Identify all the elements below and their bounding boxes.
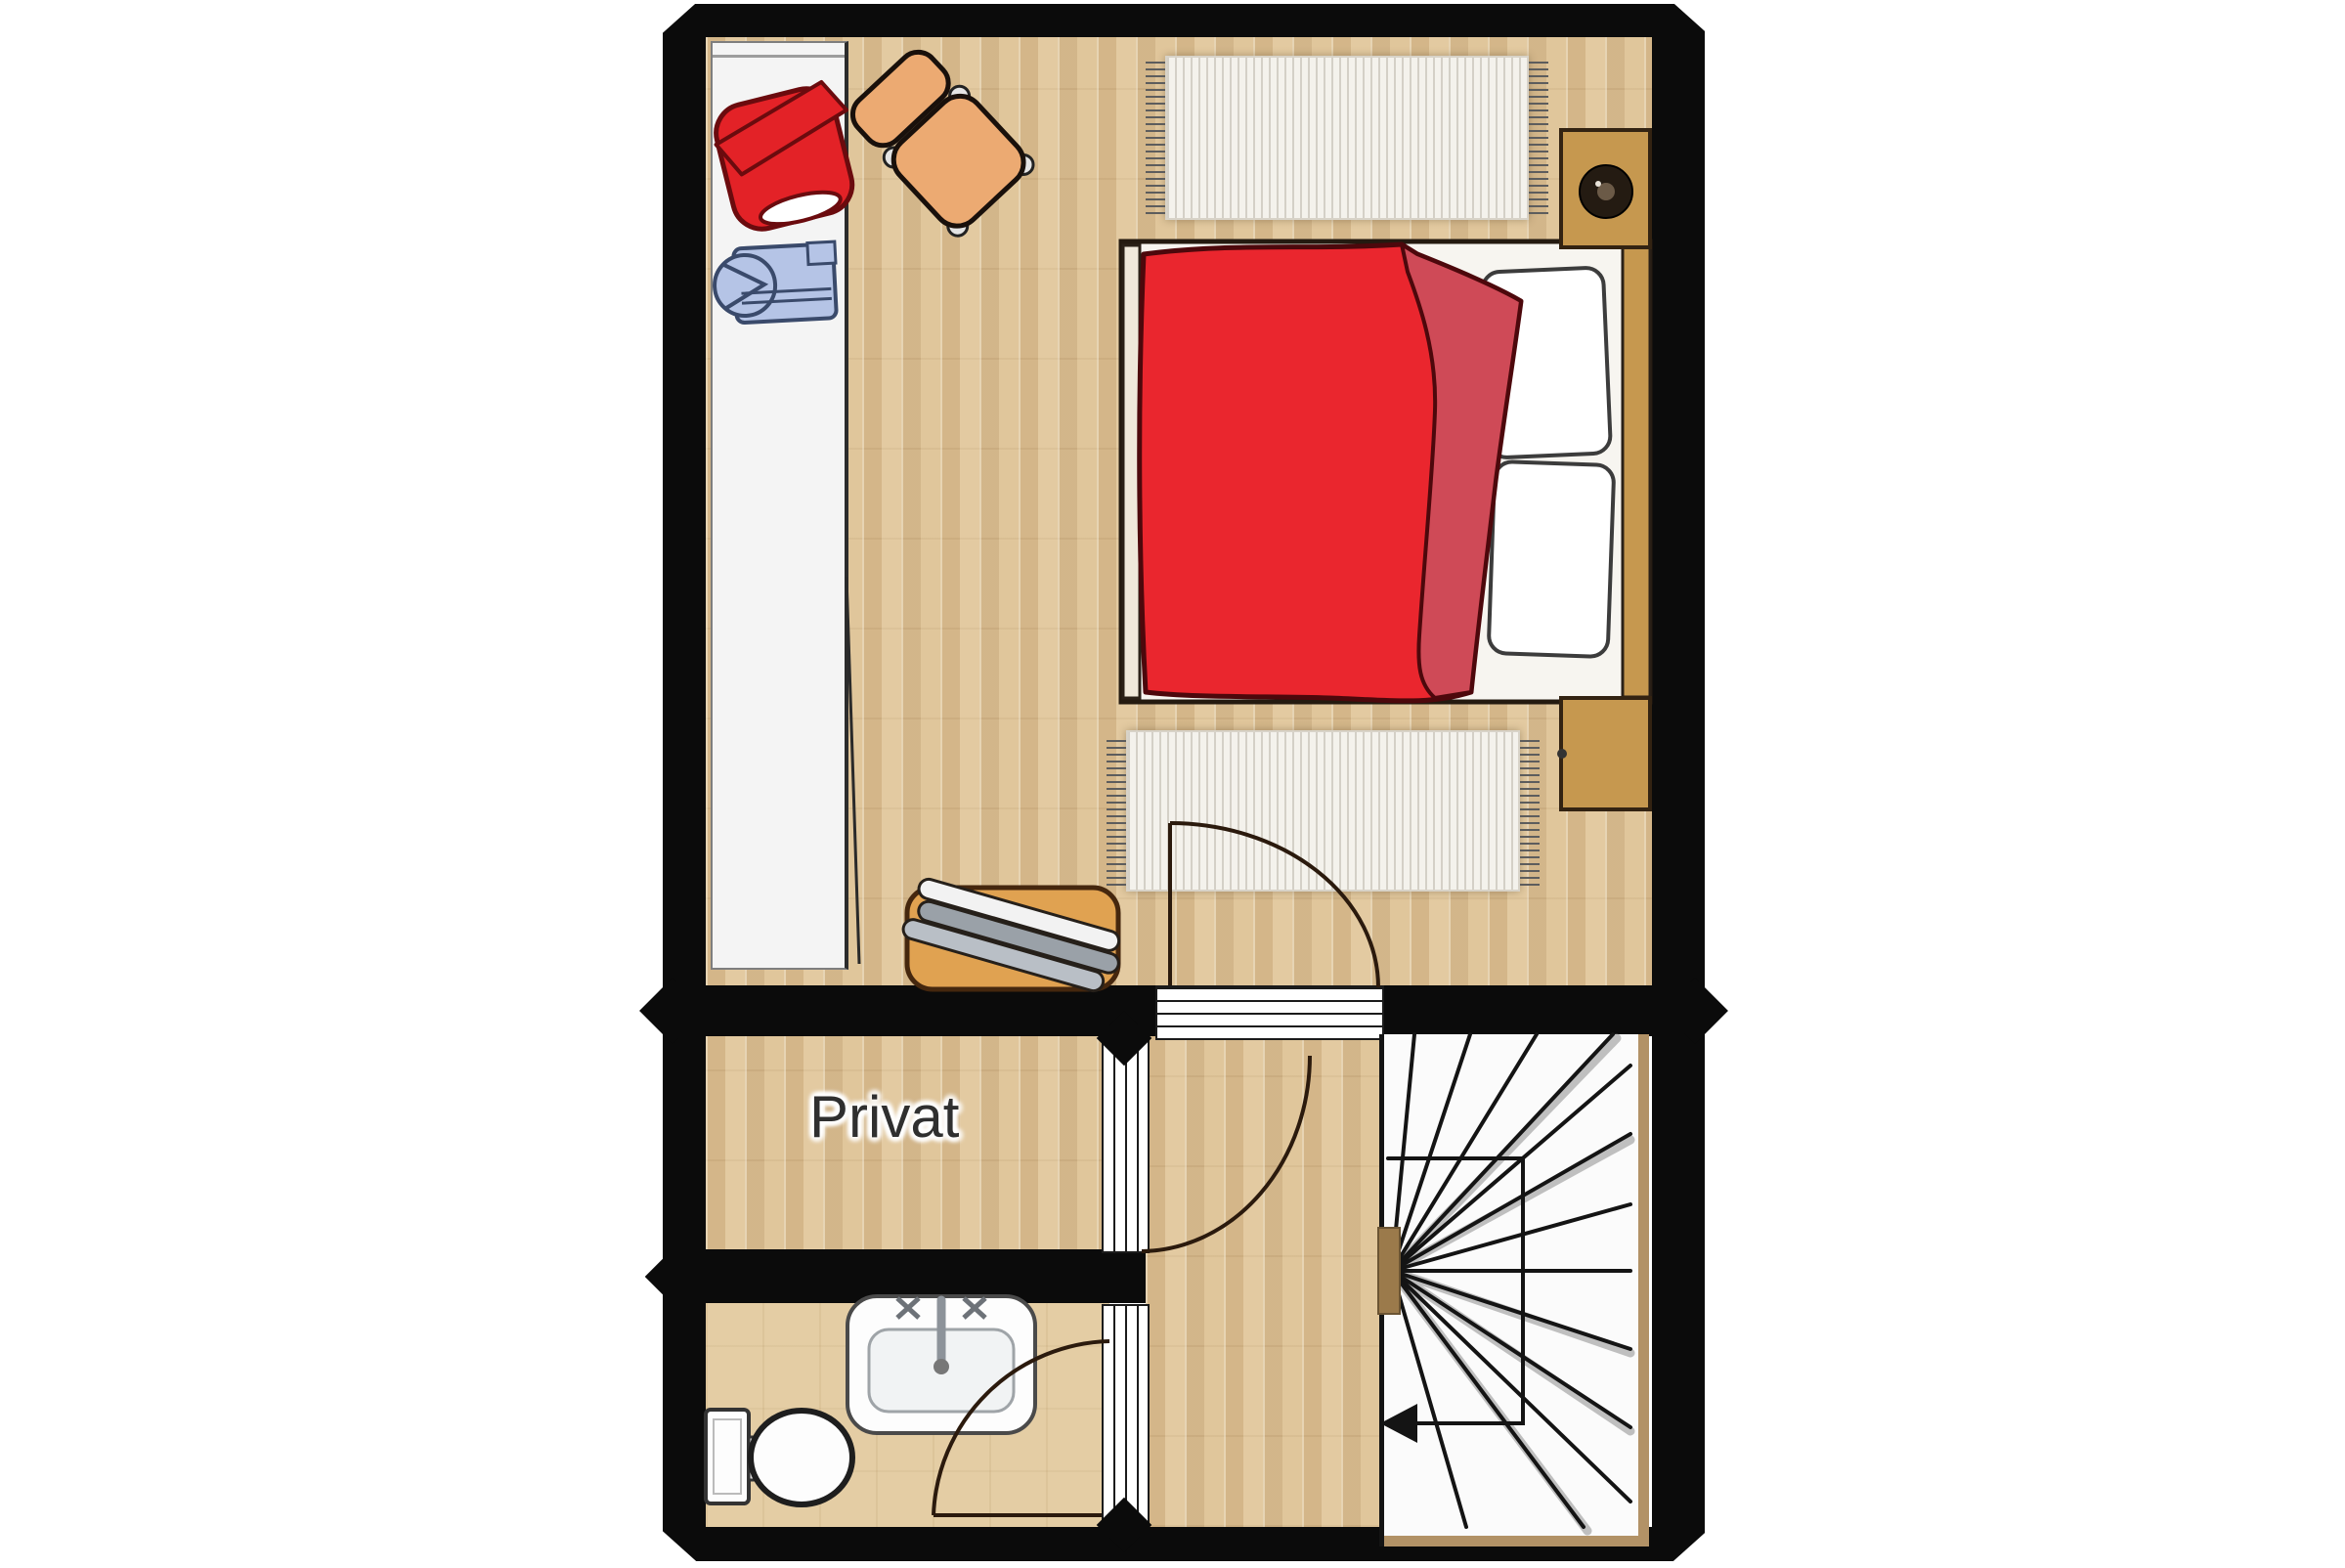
- red-jacket: [708, 78, 870, 237]
- shirt-collar: [713, 253, 776, 317]
- wardrobe-door-line: [847, 577, 859, 964]
- bedroom-door-arc: [1170, 823, 1378, 987]
- nightstand: [1557, 698, 1650, 809]
- bench-with-slats: [901, 876, 1127, 996]
- shirt-cuff: [807, 241, 836, 264]
- stair-newel-hub: [1378, 1228, 1400, 1314]
- lamp-highlight: [1595, 181, 1601, 187]
- nightstand-bottom: [1561, 698, 1650, 809]
- armchair: [842, 41, 1037, 240]
- faucet-outlet: [934, 1359, 949, 1374]
- room-label-privat: Privat: [809, 1083, 959, 1151]
- winder-staircase: [1378, 1034, 1630, 1531]
- hall-door-arc: [1142, 1056, 1310, 1251]
- floorplan-graphics: [0, 0, 2345, 1564]
- toilet: [706, 1410, 852, 1504]
- pillow: [1489, 461, 1615, 657]
- nightstand-knob: [1557, 749, 1567, 759]
- bed-headboard: [1623, 246, 1650, 697]
- sink: [847, 1296, 1035, 1433]
- stair-down-arrow: [1380, 1404, 1417, 1443]
- nightstand-with-lamp: [1561, 130, 1650, 247]
- double-bed: [1121, 241, 1650, 702]
- blue-shirt: [713, 241, 839, 324]
- toilet-bowl: [751, 1411, 852, 1504]
- toilet-cistern: [706, 1410, 749, 1503]
